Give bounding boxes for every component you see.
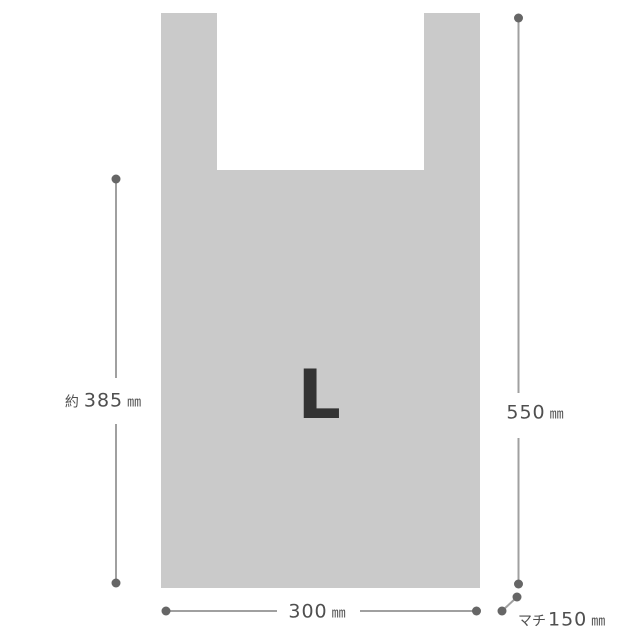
bag-silhouette: L: [161, 13, 480, 588]
bag-dimension-diagram: L 約 385 ㎜: [0, 0, 640, 640]
gusset-label-text: マチ: [518, 615, 546, 629]
right-height-value: 550: [506, 404, 545, 423]
bottom-width-label: 300 ㎜: [288, 603, 345, 622]
gusset-label: マチ 150 ㎜: [518, 611, 605, 630]
gusset-line-bottom-dot: [498, 607, 507, 616]
bottom-width-unit: ㎜: [332, 607, 346, 621]
bottom-width-value: 300: [288, 603, 327, 622]
right-line-top-dot: [514, 14, 523, 23]
gusset-dimension-line: [503, 598, 516, 610]
left-line-bottom-dot: [112, 579, 121, 588]
right-height-label: 550 ㎜: [506, 404, 563, 423]
gusset-value: 150: [548, 611, 587, 630]
bottom-line-left-dot: [162, 607, 171, 616]
right-height-unit: ㎜: [550, 408, 564, 422]
left-height-value: 385: [84, 392, 123, 411]
left-height-label: 約 385 ㎜: [65, 392, 141, 411]
right-line-bottom-dot: [514, 580, 523, 589]
bottom-line-right-dot: [472, 607, 481, 616]
gusset-unit: ㎜: [591, 615, 605, 629]
bag-size-label: L: [298, 362, 341, 430]
bag-handle-notch: [217, 13, 424, 170]
gusset-line-top-dot: [513, 593, 522, 602]
left-height-unit: ㎜: [127, 396, 141, 410]
left-line-top-dot: [112, 175, 121, 184]
left-height-prefix: 約: [65, 396, 79, 410]
